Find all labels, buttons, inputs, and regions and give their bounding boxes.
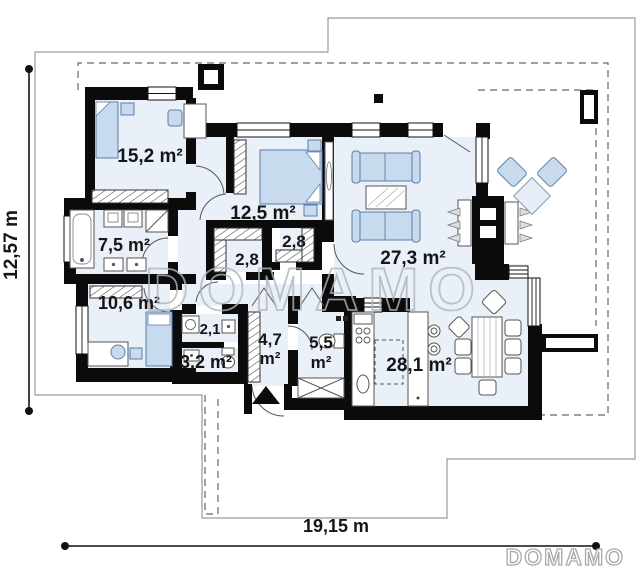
bathtub [70, 210, 94, 268]
chair [505, 358, 521, 374]
bar-stool [428, 325, 440, 337]
brand-logo: DOMAMO [506, 544, 625, 570]
nightstand [308, 140, 321, 151]
entry-walkway-dashed [205, 395, 218, 514]
kitchen-sink [357, 375, 369, 393]
terrace-table [514, 178, 551, 215]
window-bedroom1 [148, 87, 176, 100]
dimension-left-label: 12,57 m [1, 210, 22, 280]
sofa [352, 210, 420, 242]
desk-chair [168, 110, 182, 126]
dining-table [472, 317, 502, 377]
dimension-left: 12,57 m [1, 65, 33, 415]
watermark-center: DOMAMO [145, 256, 485, 323]
window-dining-corner-h [509, 266, 528, 278]
terrace-chair [496, 156, 527, 187]
window-dining-corner-v [528, 278, 540, 326]
nightstand [121, 103, 134, 115]
side-table [130, 348, 142, 359]
chair [455, 339, 471, 355]
terrace-chair [536, 156, 567, 187]
label-wc: 3,2 m² [180, 352, 232, 372]
chair [505, 339, 521, 355]
label-hall: 4,7 [258, 330, 282, 349]
sofa [352, 151, 420, 183]
label-laundry: 2,1 [200, 321, 221, 338]
entrance-arrow-icon [252, 386, 280, 404]
sink [127, 258, 146, 271]
corner-shower [146, 210, 168, 232]
nightstand [304, 205, 317, 216]
bathtub [298, 378, 344, 398]
desk-chair [111, 345, 125, 359]
wardrobe-bedroom1 [92, 190, 168, 203]
dimension-bottom-label: 19,15 m [303, 516, 369, 536]
chair [455, 358, 471, 374]
floor-plan-canvas: 15,2 m² 12,5 m² 7,5 m² 2,8 2,8 10,6 m² 2… [0, 0, 640, 573]
dryer [124, 210, 142, 227]
window-bedroom3 [76, 306, 88, 354]
bar-stool [428, 343, 440, 355]
label-bedroom2: 12,5 m² [230, 203, 295, 224]
window-living-right [476, 137, 488, 183]
corridor-pocket [196, 137, 226, 221]
label-bedroom1: 15,2 m² [117, 146, 182, 167]
label-bath-small: 5,5 [309, 333, 333, 352]
chair [479, 380, 496, 395]
label-kitchen: 28,1 m² [386, 355, 451, 376]
chimney-square [374, 94, 383, 103]
washer [104, 210, 122, 227]
coffee-table [366, 186, 406, 209]
sink [104, 258, 123, 271]
window-living-1 [352, 123, 380, 137]
label-hall-unit: m² [260, 349, 281, 368]
window-bedroom2 [237, 123, 290, 137]
desk [184, 104, 206, 138]
wardrobe-bedroom2 [234, 140, 246, 194]
label-bath-small-unit: m² [311, 353, 332, 372]
window-living-2 [408, 123, 433, 137]
radiator [325, 142, 333, 220]
chair [505, 320, 521, 336]
label-bathroom: 7,5 m² [98, 235, 150, 255]
label-closet-right: 2,8 [282, 232, 306, 251]
